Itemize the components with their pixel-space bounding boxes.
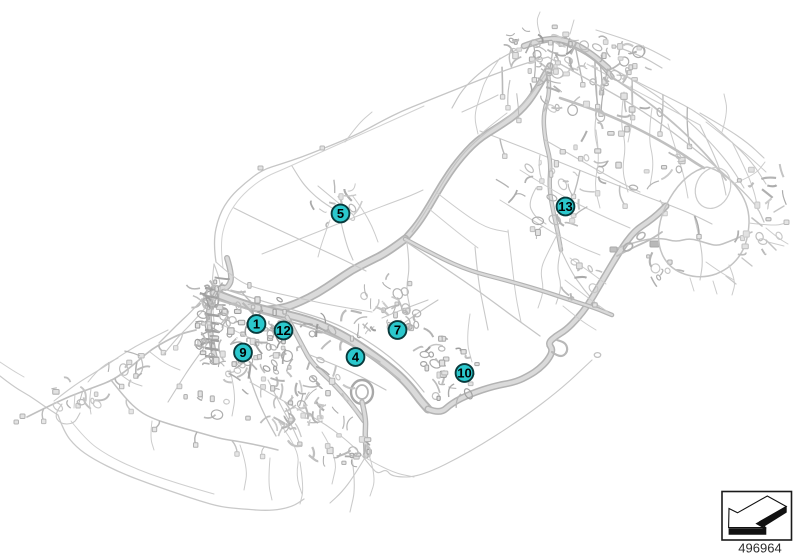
svg-text:1: 1 [253,317,260,332]
svg-text:12: 12 [276,323,290,338]
svg-text:5: 5 [337,206,344,221]
svg-text:9: 9 [239,345,246,360]
svg-text:7: 7 [394,323,401,338]
svg-text:13: 13 [558,199,572,214]
svg-text:10: 10 [457,366,471,381]
svg-text:4: 4 [352,350,360,365]
svg-text:496964: 496964 [738,541,781,556]
